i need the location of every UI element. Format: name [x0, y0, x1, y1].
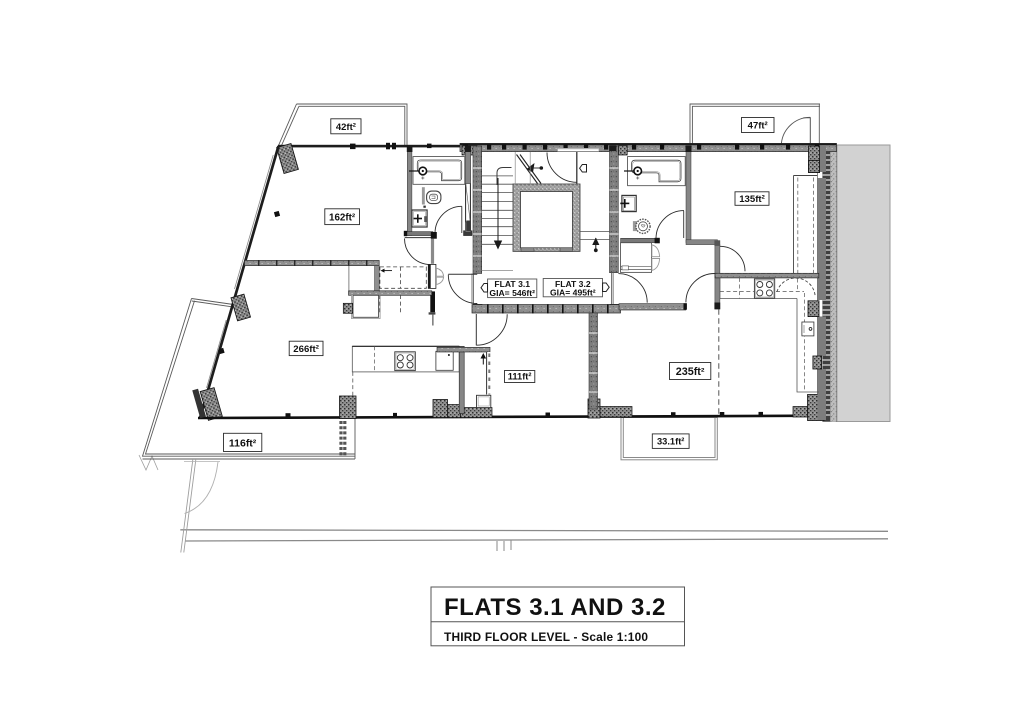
svg-text:135ft²: 135ft²: [739, 194, 765, 205]
svg-text:162ft²: 162ft²: [329, 212, 356, 223]
svg-text:111ft²: 111ft²: [508, 372, 532, 382]
svg-text:THIRD FLOOR LEVEL - Scale 1:10: THIRD FLOOR LEVEL - Scale 1:100: [444, 630, 648, 644]
svg-text:235ft²: 235ft²: [676, 366, 705, 378]
svg-text:FLATS 3.1 AND 3.2: FLATS 3.1 AND 3.2: [444, 594, 666, 621]
svg-text:33.1ft²: 33.1ft²: [657, 437, 684, 447]
svg-text:GIA= 546ft²: GIA= 546ft²: [489, 288, 535, 298]
svg-text:GIA= 495ft²: GIA= 495ft²: [550, 287, 596, 297]
svg-text:266ft²: 266ft²: [293, 344, 319, 355]
svg-text:47ft²: 47ft²: [748, 121, 768, 132]
svg-text:116ft²: 116ft²: [229, 437, 257, 449]
svg-text:42ft²: 42ft²: [336, 122, 356, 133]
